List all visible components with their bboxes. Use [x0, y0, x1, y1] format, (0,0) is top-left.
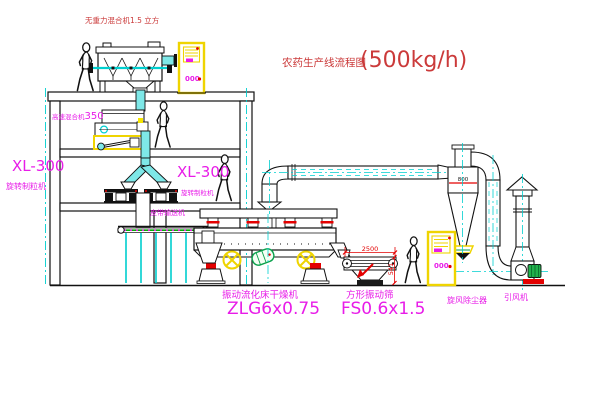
label-granulator-left-name: 旋转制粒机 — [6, 183, 46, 191]
mixer-down-pipe — [141, 131, 150, 158]
vibrating-sieve-drawing: 2500 541 — [338, 245, 398, 285]
label-dryer-model: ZLG6x0.75 — [227, 301, 320, 318]
sieve-length-dimension: 2500 — [362, 245, 379, 253]
label-high-speed-mixer-name: 高速混合机 — [52, 113, 85, 121]
fluid-bed-dryer-drawing — [194, 209, 350, 284]
discharge-chute — [136, 193, 150, 227]
cabinet-top-display: 000 — [185, 75, 200, 83]
y-split-pipe — [124, 158, 168, 184]
control-cabinet-top: 000 — [177, 43, 206, 93]
person-figure-level2 — [155, 102, 170, 147]
diagram-title: 农药生产线流程图 — [282, 58, 366, 69]
sieve-height-dimension: 541 — [387, 263, 395, 275]
mixer-discharge-pipe — [136, 90, 145, 111]
label-sieve-model: FS0.6x1.5 — [341, 301, 425, 318]
diagram-title-capacity: (500kg/h) — [360, 50, 467, 72]
cyclone-diameter-dimension: 800 — [458, 177, 469, 183]
control-cabinet-right: 000 — [428, 232, 455, 285]
granulator-left-drawing — [104, 182, 138, 203]
induced-draft-fan-drawing — [511, 261, 544, 284]
label-gravity-mixer: 无重力混合机1.5 立方 — [85, 17, 159, 25]
label-cyclone: 旋风除尘器 — [447, 297, 487, 305]
fan-base — [523, 279, 544, 284]
label-fan: 引风机 — [504, 294, 528, 302]
cabinet-right-display: 000 — [434, 262, 449, 270]
label-granulator-right-model: XL-300 — [177, 165, 229, 180]
label-belt-conveyor: 皮带输送机 — [150, 210, 185, 217]
label-granulator-left-model: XL-300 — [12, 159, 64, 174]
fan-motor-icon — [528, 265, 541, 278]
person-figure-ground — [405, 237, 420, 283]
label-granulator-right-name: 旋转制粒机 — [181, 190, 214, 197]
label-high-speed-mixer: 高速混合机350 — [52, 112, 104, 122]
process-flow-diagram: 000 — [0, 0, 600, 403]
label-high-speed-mixer-model: 350 — [85, 111, 104, 122]
